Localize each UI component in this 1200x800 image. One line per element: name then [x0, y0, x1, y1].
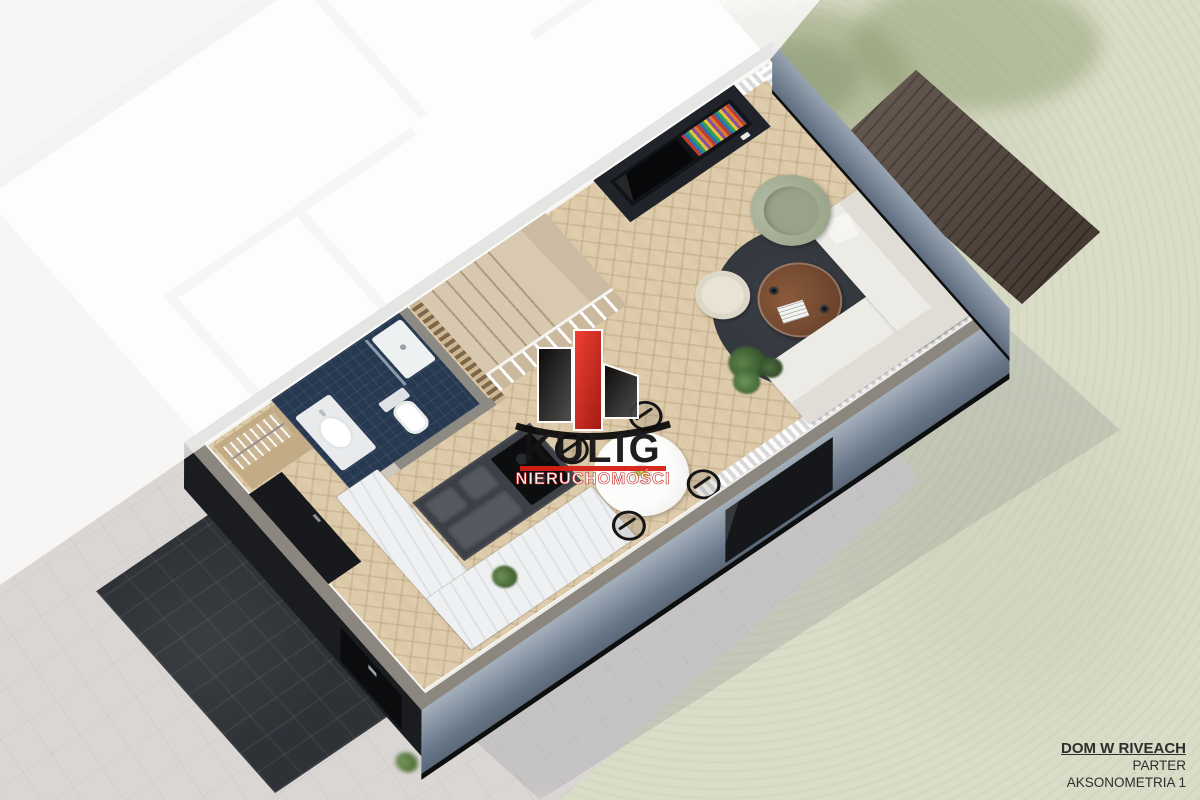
view-label: AKSONOMETRIA 1 [1061, 775, 1186, 792]
logo-black-tower-right [604, 364, 638, 418]
logo-tagline-text: NIERUCHOMOŚCI [515, 469, 670, 486]
axonometric-floorplan-render: KULIG NIERUCHOMOŚCI DOM W RIVEACH PARTER… [0, 0, 1200, 800]
logo-red-tower [574, 330, 602, 430]
watermark-logo: KULIG NIERUCHOMOŚCI [508, 326, 678, 486]
title-block: DOM W RIVEACH PARTER AKSONOMETRIA 1 [1061, 740, 1186, 793]
floor-label: PARTER [1061, 758, 1186, 775]
logo-brand-text: KULIG [523, 427, 662, 471]
project-title: DOM W RIVEACH [1061, 740, 1186, 759]
logo-black-tower [538, 348, 572, 422]
